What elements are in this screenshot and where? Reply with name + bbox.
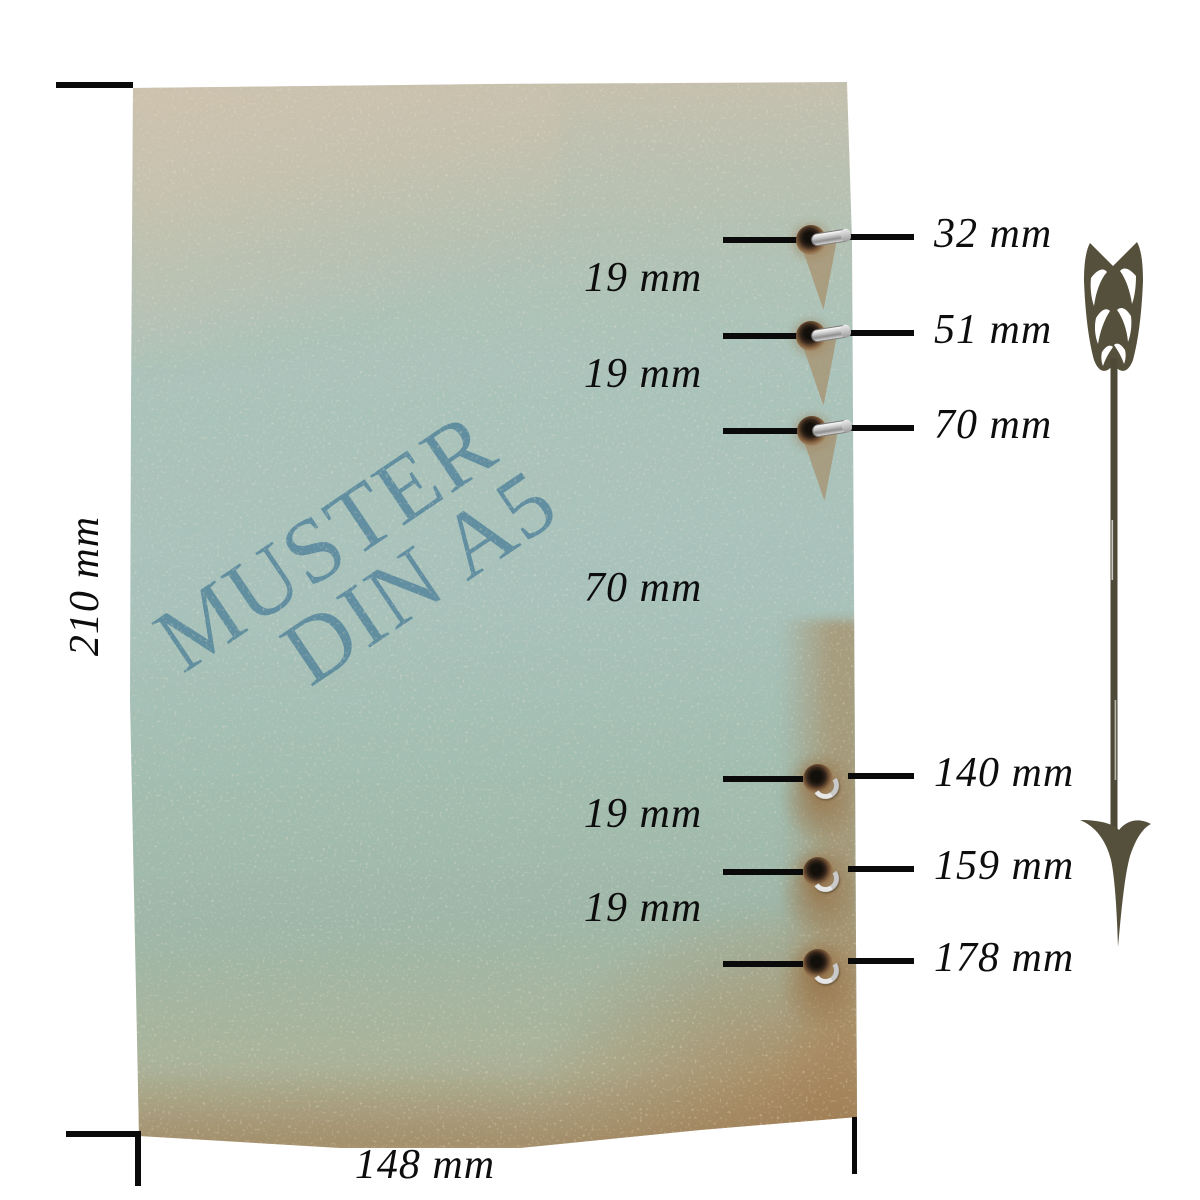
gap-distance-label: 19 mm xyxy=(584,353,702,395)
gap-labels-layer: 19 mm19 mm70 mm19 mm19 mm xyxy=(0,0,1200,1200)
diagram-canvas: MUSTER DIN A5 210 mm 148 mm 32 mm51 mm70… xyxy=(0,0,1200,1200)
gap-distance-label: 19 mm xyxy=(584,887,702,929)
gap-distance-label: 70 mm xyxy=(584,567,702,609)
down-arrow-icon xyxy=(1060,230,1160,960)
gap-distance-label: 19 mm xyxy=(584,793,702,835)
gap-distance-label: 19 mm xyxy=(584,257,702,299)
